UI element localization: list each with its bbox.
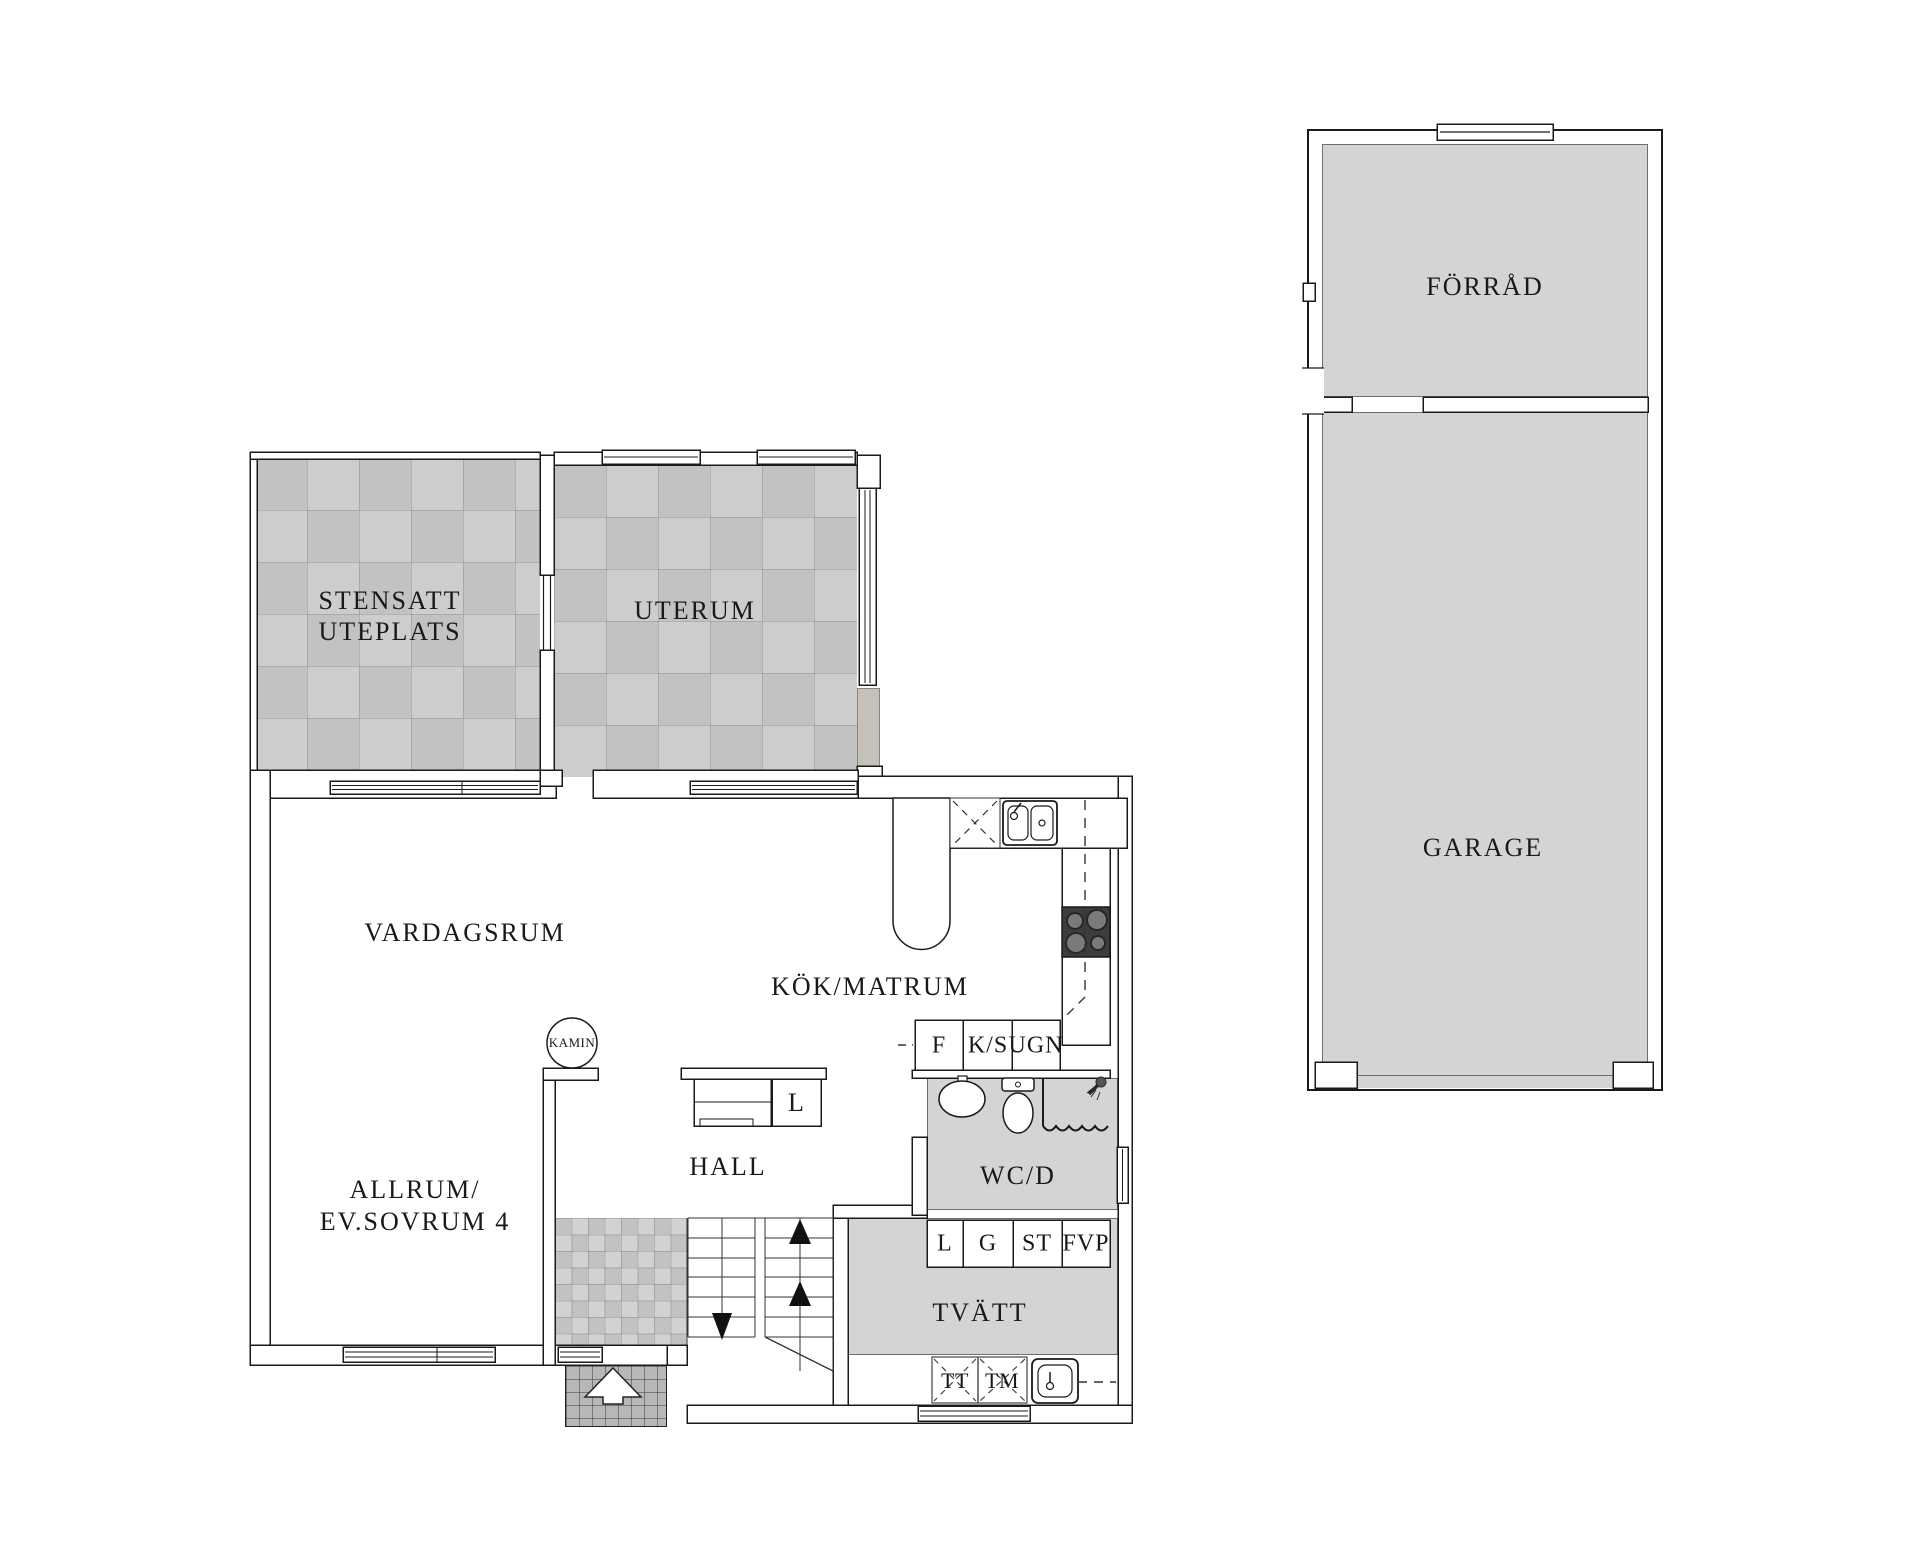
stair-break-line (765, 1337, 833, 1371)
laundry-cabinet-st-label: ST (1022, 1231, 1052, 1258)
allrum-label-line2: EV.SOVRUM 4 (320, 1207, 511, 1237)
allrum-hall-wall (543, 1068, 555, 1365)
laundry-window (918, 1406, 1030, 1421)
wcd-label: WC/D (980, 1161, 1056, 1191)
patio-uterum-divider-upper (540, 455, 554, 575)
east-wall (1118, 776, 1132, 1423)
forrad-side-door (1302, 368, 1324, 414)
laundry-sink-icon (1032, 1359, 1078, 1403)
garage-door-stub-left (1315, 1062, 1357, 1088)
wcd-fixtures (939, 1076, 1108, 1133)
fireplace-label: KAMIN (549, 1035, 596, 1051)
patio-uterum-divider-lower (540, 650, 554, 770)
toilet-icon (1002, 1078, 1034, 1133)
stair-treads (688, 1238, 833, 1337)
patio-top-wall (250, 452, 540, 459)
garage-label: GARAGE (1423, 833, 1543, 863)
divider-wall-right (1423, 397, 1648, 412)
washer-label: TM (985, 1368, 1019, 1394)
outbuilding-walls (1302, 124, 1662, 1090)
shower-head-icon (1087, 1077, 1106, 1100)
entry-window (558, 1347, 602, 1362)
kitchen-peninsula (893, 798, 950, 949)
wcd-top-wall (912, 1070, 1110, 1078)
stove-icon (1062, 907, 1110, 957)
stairs-down-arrow (712, 1313, 732, 1340)
tvatt-label: TVÄTT (932, 1298, 1027, 1328)
kamin-wall-stub (543, 1068, 598, 1080)
uterum-east-wall-upper (857, 455, 880, 488)
garage-wall-notch (1303, 283, 1315, 301)
forrad-window (1437, 124, 1553, 140)
stairs-up-arrow-2 (789, 1281, 811, 1306)
kitchen (893, 798, 1127, 1070)
bottom-wall-east (687, 1405, 1132, 1423)
garage-door-stub-right (1613, 1062, 1653, 1088)
cabinet-ugn-label: UGN (1009, 1033, 1064, 1060)
wcd-window (1117, 1147, 1128, 1203)
laundry-cabinet-l-label: L (937, 1231, 953, 1258)
divider-wall-stub-left (1322, 397, 1352, 412)
wcd-left-wall (912, 1137, 927, 1215)
uterum-top-window-2 (757, 450, 855, 464)
vardagsrum-label: VARDAGSRUM (364, 918, 566, 948)
uterum-east-window (859, 488, 876, 685)
stairs-tvatt-wall (833, 1205, 848, 1405)
laundry-cabinet-g-label: G (979, 1231, 997, 1258)
patio-uterum-door (544, 575, 551, 650)
dishwasher-icon (950, 798, 1000, 848)
allrum-window (343, 1347, 495, 1362)
uterum-door-step (540, 770, 562, 786)
west-wall (250, 770, 270, 1365)
patio-label-line1: STENSATT (318, 586, 461, 616)
allrum-label-line1: ALLRUM/ (350, 1175, 481, 1205)
cabinet-f-label: F (932, 1033, 946, 1060)
laundry-cabinet-fvp-label: FVP (1062, 1231, 1109, 1258)
uterum-top-window-1 (602, 450, 700, 464)
hall-closet-label: L (788, 1088, 806, 1118)
floor-plan: STENSATT UTEPLATS UTERUM VARDAGSRUM KÖK/… (0, 0, 1920, 1560)
uterum-bottom-window (690, 781, 857, 794)
entry-wall-stub (667, 1345, 687, 1365)
staircase (687, 1218, 833, 1371)
vardagsrum-window (330, 781, 540, 794)
uterum-label: UTERUM (634, 596, 756, 626)
patio-label-line2: UTEPLATS (318, 617, 461, 647)
kitchen-sink-icon (1003, 801, 1057, 845)
stairs-up-arrow-1 (789, 1219, 811, 1244)
bathroom-sink-icon (939, 1076, 985, 1117)
dryer-label: TT (941, 1368, 969, 1394)
top-wall-kitchen (858, 776, 1132, 798)
hall-bench-top (681, 1068, 826, 1079)
hall-shoe-shelf (700, 1119, 753, 1126)
entrance-arrow-icon (585, 1368, 641, 1404)
patio-left-wall (250, 452, 257, 770)
hall-label: HALL (689, 1152, 766, 1182)
kok-label: KÖK/MATRUM (771, 972, 969, 1002)
cabinet-ks-label: K/S (968, 1033, 1008, 1060)
forrad-label: FÖRRÅD (1426, 272, 1543, 302)
